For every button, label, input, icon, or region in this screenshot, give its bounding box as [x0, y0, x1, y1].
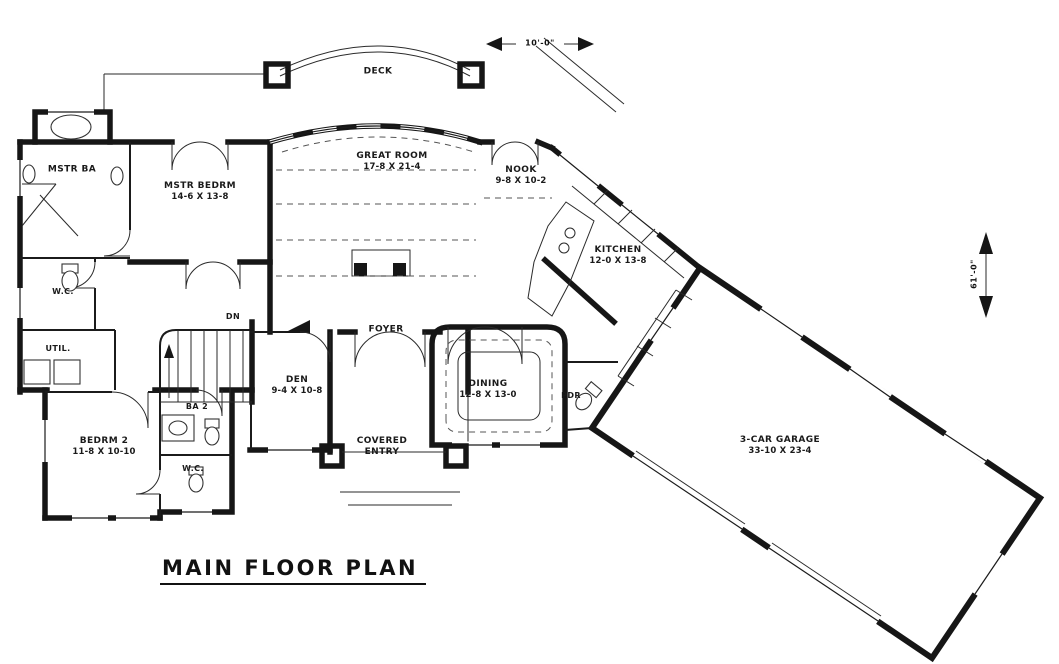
stairs-direction-arrow [164, 344, 174, 358]
dimension-label-plan-depth: 61'-0" [970, 259, 979, 289]
room-label-nook: NOOK 9-8 X 10-2 [495, 165, 546, 187]
room-label-den: DEN 9-4 X 10-8 [271, 375, 322, 397]
room-name: DINING [468, 379, 507, 389]
room-label-mstr-ba: MSTR BA [48, 164, 96, 175]
room-label-wc2: W.C. [182, 464, 204, 474]
room-dims: 14-6 X 13-8 [164, 192, 236, 203]
room-dims: 11-8 X 10-10 [72, 447, 135, 458]
sink [23, 165, 35, 183]
room-name: W.C. [52, 287, 74, 296]
room-label-deck: DECK [364, 66, 393, 77]
room-name: GREAT ROOM [356, 151, 427, 161]
entry-post [446, 446, 466, 466]
room-name: BEDRM 2 [80, 436, 129, 446]
room-dims: 12-8 X 13-0 [459, 390, 516, 401]
sink [111, 167, 123, 185]
room-label-bedrm2: BEDRM 2 11-8 X 10-10 [72, 436, 135, 458]
kitchen-casework [528, 186, 692, 386]
room-label-covered-entry: COVERED ENTRY [350, 436, 414, 459]
room-label-ba2: BA 2 [186, 402, 208, 412]
room-dims: 12-0 X 13-8 [589, 256, 646, 267]
garage-doors [633, 308, 881, 621]
room-name: MSTR BEDRM [164, 181, 236, 191]
room-dims: 17-8 X 21-4 [356, 162, 427, 173]
fireplace [352, 250, 410, 276]
room-name: DECK [364, 66, 393, 76]
deck-post [460, 64, 482, 86]
room-label-dining: DINING 12-8 X 13-0 [459, 379, 516, 401]
room-name: UTIL. [45, 344, 70, 353]
room-name: COVERED ENTRY [357, 436, 407, 457]
room-label-great-room: GREAT ROOM 17-8 X 21-4 [356, 151, 427, 173]
plan-title: MAIN FLOOR PLAN [160, 556, 426, 585]
room-name: KITCHEN [594, 245, 641, 255]
room-name: DN [226, 312, 240, 321]
room-name: FOYER [368, 324, 403, 334]
room-dims: 33-10 X 23-4 [740, 446, 820, 457]
tub [51, 115, 91, 139]
room-label-util: UTIL. [45, 344, 70, 354]
sink [169, 421, 187, 435]
dimension-label-deck-width: 10'-0" [525, 39, 555, 48]
room-name: MSTR BA [48, 164, 96, 174]
floor-plan-drawing [0, 0, 1059, 664]
room-dims: 9-8 X 10-2 [495, 176, 546, 187]
room-label-kitchen: KITCHEN 12-0 X 13-8 [589, 245, 646, 267]
floor-plan-page: DECK MSTR BA W.C. UTIL. MSTR BEDRM 14-6 … [0, 0, 1059, 664]
room-label-pdr: PDR [561, 391, 581, 401]
room-name: 3-CAR GARAGE [740, 435, 820, 445]
room-label-garage: 3-CAR GARAGE 33-10 X 23-4 [740, 435, 820, 457]
room-label-foyer: FOYER [368, 324, 403, 335]
room-label-mstr-bedrm: MSTR BEDRM 14-6 X 13-8 [164, 181, 236, 203]
room-name: NOOK [505, 165, 536, 175]
room-name: DEN [286, 375, 308, 385]
kitchen-island [528, 202, 594, 316]
room-name: PDR [561, 391, 581, 400]
washer [24, 360, 50, 384]
dryer [54, 360, 80, 384]
room-label-wc-master: W.C. [52, 287, 74, 297]
stairs-dn-label: DN [226, 312, 240, 322]
room-dims: 9-4 X 10-8 [271, 386, 322, 397]
room-name: W.C. [182, 464, 204, 473]
room-name: BA 2 [186, 402, 208, 411]
